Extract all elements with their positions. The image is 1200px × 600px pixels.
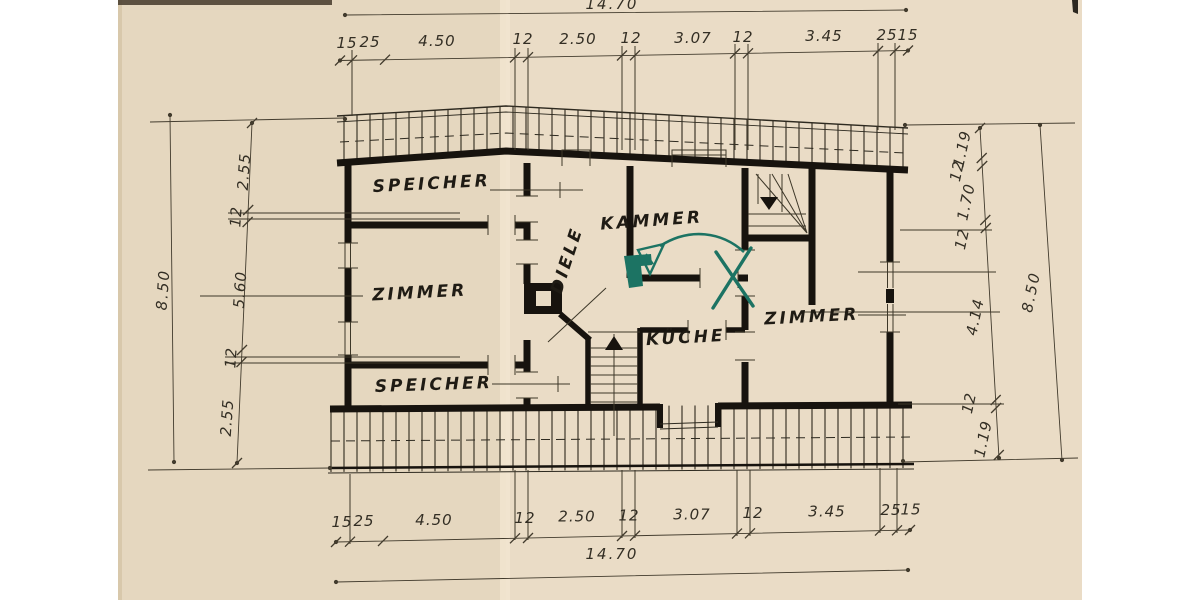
dim-bottom-seg-3: 12 [514,509,535,527]
dim-top-total: 14.70 [586,0,639,13]
dim-top-seg-10: 15 [897,26,918,44]
dim-left-seg-4: 2.55 [217,398,238,437]
dim-left-total: 8.50 [153,268,174,311]
dim-left-seg-1: 12 [226,206,245,228]
dim-bottom-seg-6: 3.07 [673,506,710,524]
dim-top-seg-9: 25 [876,26,897,44]
dim-top-seg-3: 12 [512,30,533,48]
floorplan-drawing: 14.70 15 25 4.50 12 2.50 12 3.07 12 3.45… [0,0,1200,600]
dim-top-seg-0: 15 [336,34,357,52]
dim-left-seg-3: 12 [221,347,240,369]
paper-fold-crease [500,0,510,600]
scan-edge-shadow [118,0,332,5]
dim-left-seg-2: 5.60 [230,270,251,309]
dim-top-seg-7: 12 [732,28,753,46]
dim-bottom-seg-8: 3.45 [808,503,845,521]
dim-bottom-seg-2: 4.50 [415,511,452,529]
dim-top-seg-6: 3.07 [674,29,711,47]
dim-bottom-seg-4: 2.50 [558,508,595,526]
paper-sheet [118,0,1082,600]
dim-top-seg-1: 25 [359,33,380,51]
dim-top-seg-5: 12 [620,29,641,47]
floorplan-scan: 14.70 15 25 4.50 12 2.50 12 3.07 12 3.45… [0,0,1200,600]
dim-top-seg-2: 4.50 [418,32,455,50]
dim-bottom-seg-5: 12 [618,507,639,525]
dim-bottom-seg-7: 12 [742,504,763,522]
room-label-speicher-bottom: SPEICHER [374,373,493,397]
dim-left-seg-0: 2.55 [234,152,255,191]
dim-top-seg-8: 3.45 [805,27,842,45]
dim-bottom-total: 14.70 [586,545,639,563]
dim-bottom-seg-0: 15 [331,513,352,531]
dim-bottom-seg-1: 25 [353,512,374,530]
dim-bottom-seg-10: 15 [900,501,921,519]
window-mullion [886,289,894,303]
roof-band-bottom [328,403,914,473]
dim-bottom-seg-9: 25 [880,501,901,519]
dim-top-seg-4: 2.50 [559,30,596,48]
